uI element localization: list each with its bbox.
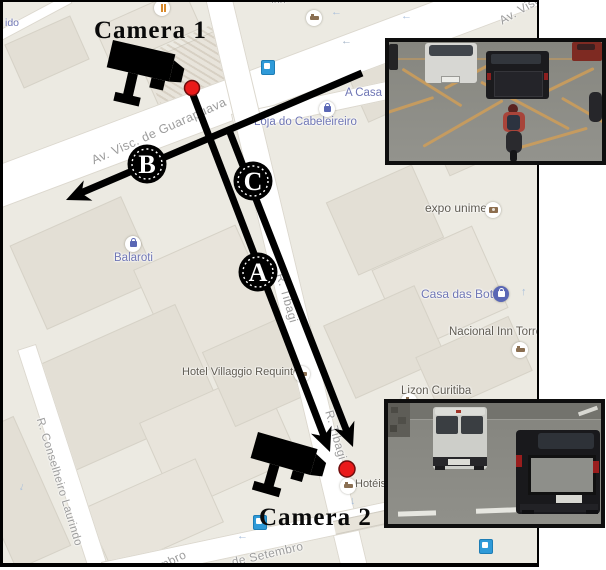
camera1-view-photo xyxy=(385,38,606,165)
restaurant-icon xyxy=(154,0,170,16)
black-pickup xyxy=(516,430,600,514)
lane-arrow-icon: ↑ xyxy=(521,287,527,298)
figure-canvas: Av. Visc. de Guarapuava Av. Visc. R. Tib… xyxy=(0,0,606,570)
lane-arrow-icon: ← xyxy=(331,7,342,18)
lane-arrow-icon: ← xyxy=(341,36,352,47)
hotel-bed-icon xyxy=(340,478,356,494)
place-label-hotel-villaggio-requinte: Hotel Villaggio Requinte xyxy=(182,366,299,378)
camera-1-label: Camera 1 xyxy=(94,17,207,45)
shopping-bag-icon xyxy=(319,101,335,117)
red-car xyxy=(572,42,602,61)
place-label-nacional-inn-torres: Nacional Inn Torres xyxy=(449,326,539,338)
shopping-bag-icon xyxy=(125,236,141,252)
black-pickup xyxy=(486,51,549,99)
place-label-hoteis: Hotéis xyxy=(355,478,386,490)
place-label-expo-unimed: expo unimed xyxy=(425,201,494,215)
transit-station-icon xyxy=(261,60,275,75)
motorcyclist xyxy=(501,104,529,162)
camera2-view-photo xyxy=(384,399,605,528)
place-label-cutoff-inn: Inn xyxy=(271,0,286,6)
place-label-loja-do-cabeleireiro: Loja do Cabeleireiro xyxy=(254,116,357,128)
white-van xyxy=(425,43,477,83)
white-van xyxy=(433,407,487,469)
photo-spot-icon xyxy=(485,202,501,218)
hotel-bed-icon xyxy=(306,10,322,26)
hotel-bed-icon xyxy=(294,366,310,382)
transit-station-icon xyxy=(479,539,493,554)
lane-arrow-icon: ← xyxy=(237,531,248,542)
hotel-bed-icon xyxy=(512,342,528,358)
place-label-balaroti: Balaroti xyxy=(114,252,153,264)
place-label-ido: ido xyxy=(5,17,19,29)
camera-2-label: Camera 2 xyxy=(259,504,372,532)
lane-arrow-icon: ← xyxy=(401,11,412,22)
motorcycle-edge xyxy=(589,92,602,122)
dark-car-edge xyxy=(389,44,398,70)
stone-wall xyxy=(388,403,410,437)
shopping-bag-icon xyxy=(493,286,509,302)
far-roadway xyxy=(388,403,605,420)
